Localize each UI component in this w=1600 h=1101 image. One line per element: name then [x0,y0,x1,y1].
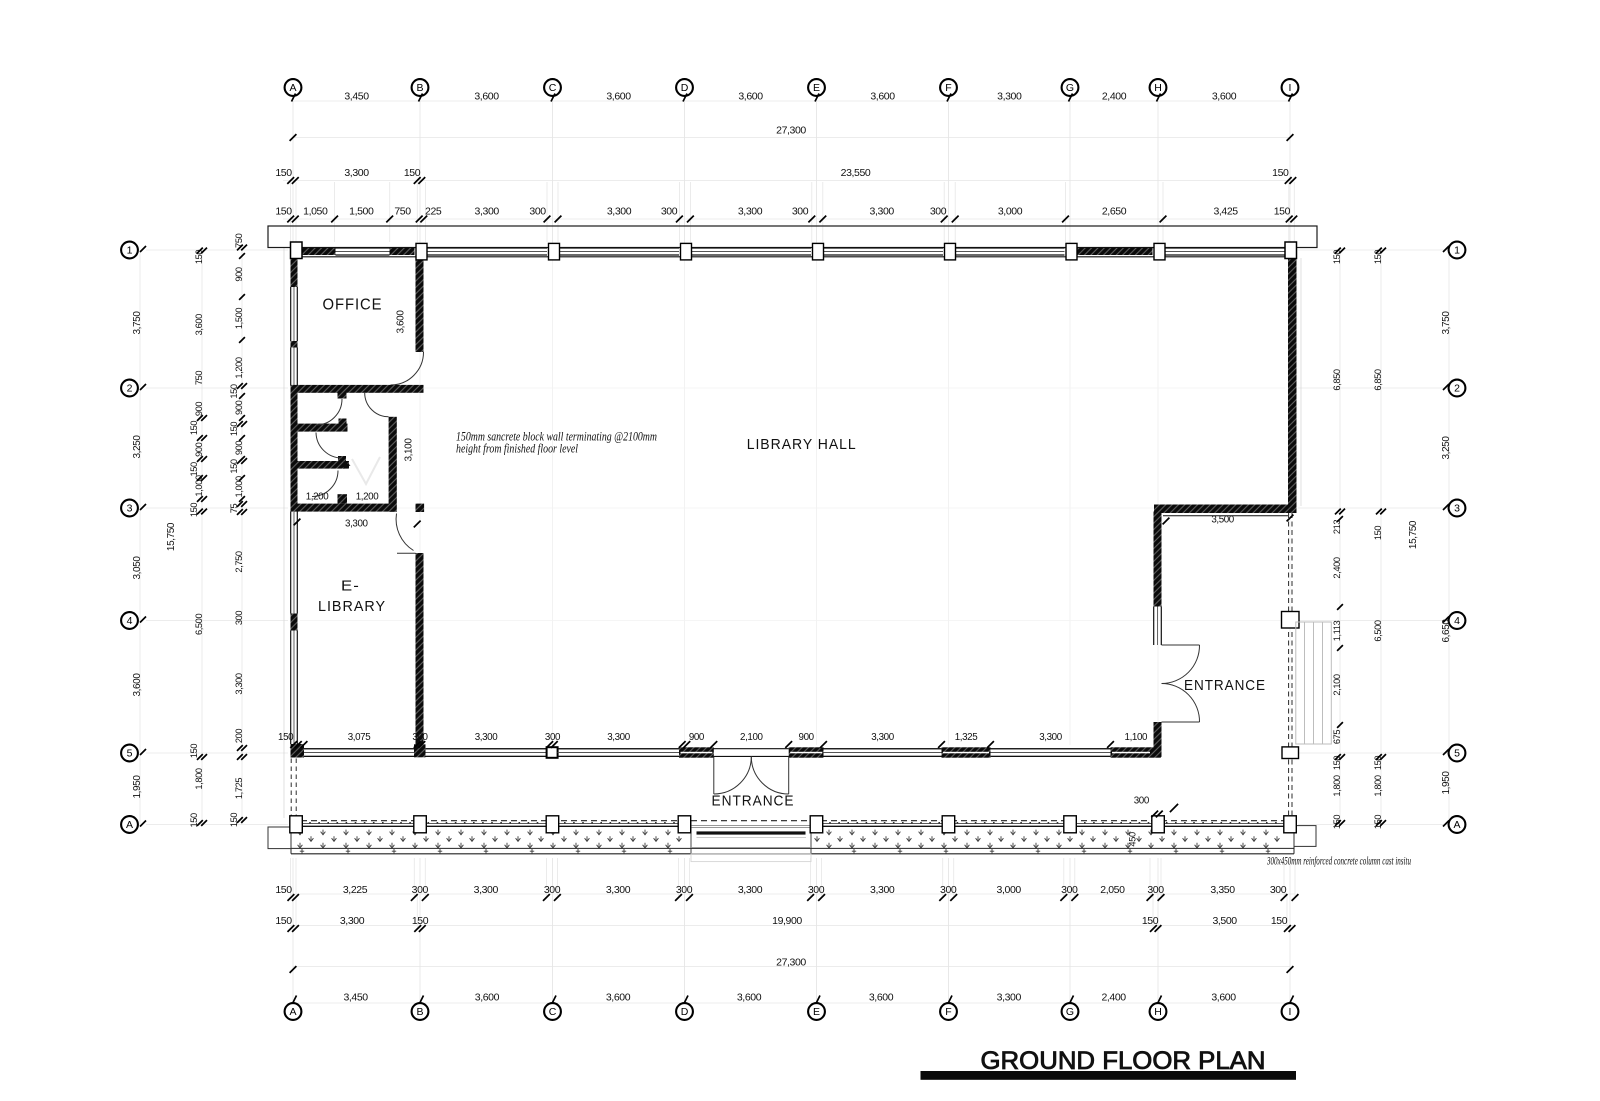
svg-text:2,750: 2,750 [234,551,244,572]
svg-text:2: 2 [127,383,133,395]
svg-text:GROUND FLOOR PLAN: GROUND FLOOR PLAN [981,1047,1266,1075]
svg-text:1,200: 1,200 [234,357,244,378]
svg-text:1: 1 [1454,245,1460,257]
svg-text:300: 300 [661,206,678,218]
svg-text:B: B [416,82,423,94]
svg-text:3,050: 3,050 [132,556,143,580]
svg-text:3,600: 3,600 [1211,991,1236,1003]
svg-text:150: 150 [278,732,294,743]
svg-text:3: 3 [1454,503,1460,515]
svg-text:19,900: 19,900 [772,915,802,927]
svg-text:3,100: 3,100 [404,438,415,462]
svg-text:3,450: 3,450 [343,991,368,1003]
svg-text:H: H [1154,82,1162,94]
svg-text:3,750: 3,750 [132,311,143,335]
svg-text:1,200: 1,200 [356,492,379,503]
svg-text:150: 150 [1272,167,1289,179]
svg-text:150: 150 [189,462,199,477]
svg-text:300: 300 [1147,884,1164,896]
svg-text:150: 150 [275,167,292,179]
svg-text:3,600: 3,600 [606,991,631,1003]
svg-text:A: A [1453,819,1460,831]
svg-text:D: D [681,1006,689,1018]
svg-text:1,100: 1,100 [1125,732,1148,743]
svg-text:1,050: 1,050 [303,206,328,218]
svg-text:F: F [945,1006,951,1018]
svg-text:3,075: 3,075 [348,732,371,743]
svg-text:300: 300 [1134,796,1150,807]
svg-text:3,425: 3,425 [1213,206,1238,218]
svg-text:1,950: 1,950 [132,775,143,799]
svg-text:300: 300 [792,206,809,218]
svg-text:150: 150 [275,915,292,927]
svg-text:200: 200 [234,729,244,744]
svg-text:4: 4 [127,615,133,627]
svg-text:3,300: 3,300 [870,884,895,896]
svg-text:150: 150 [189,744,199,759]
svg-text:15,750: 15,750 [166,522,177,551]
svg-text:2,400: 2,400 [1102,91,1127,103]
svg-text:ENTRANCE: ENTRANCE [1184,678,1266,694]
svg-text:900: 900 [234,267,244,282]
svg-text:2,650: 2,650 [1102,206,1127,218]
svg-text:ENTRANCE: ENTRANCE [712,794,795,810]
svg-text:C: C [549,82,557,94]
svg-text:3,300: 3,300 [997,991,1022,1003]
svg-text:150: 150 [189,421,199,436]
svg-text:G: G [1066,1006,1074,1018]
svg-text:I: I [1289,1006,1292,1018]
svg-text:300: 300 [808,884,825,896]
svg-text:3,600: 3,600 [396,310,407,334]
svg-text:3,225: 3,225 [343,884,368,896]
svg-text:1,800: 1,800 [1373,775,1383,796]
svg-text:3,300: 3,300 [997,91,1022,103]
svg-text:OFFICE: OFFICE [323,297,383,314]
svg-text:3,500: 3,500 [1212,915,1237,927]
svg-text:2,400: 2,400 [1101,991,1126,1003]
svg-text:900: 900 [194,442,204,457]
svg-text:G: G [1066,82,1074,94]
svg-text:3,000: 3,000 [998,206,1023,218]
svg-text:300: 300 [676,884,693,896]
svg-text:150: 150 [229,422,239,437]
svg-text:3,300: 3,300 [474,884,499,896]
svg-text:3,250: 3,250 [132,435,143,459]
svg-text:LIBRARY HALL: LIBRARY HALL [747,437,857,453]
svg-text:4: 4 [1454,615,1460,627]
svg-text:3,300: 3,300 [340,915,365,927]
svg-text:900: 900 [234,441,244,456]
svg-text:27,300: 27,300 [776,957,806,969]
svg-text:2,100: 2,100 [740,732,763,743]
svg-text:750: 750 [394,206,411,218]
svg-text:450: 450 [1128,832,1138,847]
svg-text:3,000: 3,000 [997,884,1022,896]
svg-text:2: 2 [1454,383,1460,395]
svg-text:23,550: 23,550 [841,167,871,179]
svg-text:300x450mm reinforced concrete: 300x450mm reinforced concrete column cas… [1266,854,1411,868]
svg-text:3,300: 3,300 [475,732,498,743]
svg-text:3,300: 3,300 [1039,732,1062,743]
svg-text:150: 150 [1373,526,1383,541]
svg-text:5: 5 [1454,748,1460,760]
svg-text:6,650: 6,650 [1441,619,1452,643]
svg-text:3,300: 3,300 [871,732,894,743]
svg-text:1,725: 1,725 [234,778,244,799]
svg-text:2,050: 2,050 [1100,884,1125,896]
svg-text:3: 3 [127,503,133,515]
svg-text:6,500: 6,500 [194,614,204,635]
svg-text:I: I [1289,82,1292,94]
svg-text:300: 300 [1270,884,1287,896]
svg-text:3,600: 3,600 [194,314,204,335]
svg-text:LIBRARY: LIBRARY [318,599,386,615]
svg-text:150: 150 [275,206,292,218]
svg-text:3,600: 3,600 [474,91,499,103]
svg-text:5: 5 [127,748,133,760]
svg-text:A: A [126,819,133,831]
svg-text:150: 150 [229,813,239,828]
svg-text:1,000: 1,000 [234,476,244,497]
svg-text:2,100: 2,100 [1332,674,1342,695]
svg-text:E-: E- [341,579,360,595]
svg-text:height from finished floor lev: height from finished floor level [456,442,578,456]
svg-text:3,300: 3,300 [234,673,244,694]
svg-text:3,250: 3,250 [1441,436,1452,460]
svg-text:1,800: 1,800 [194,768,204,789]
svg-text:150: 150 [1373,815,1383,830]
svg-text:150: 150 [1274,206,1291,218]
svg-text:15,750: 15,750 [1408,520,1419,549]
svg-text:3,300: 3,300 [738,206,763,218]
svg-text:3,600: 3,600 [870,91,895,103]
svg-text:150: 150 [229,459,239,474]
svg-text:27,300: 27,300 [776,125,806,137]
svg-text:150: 150 [275,884,292,896]
svg-text:300: 300 [412,884,429,896]
svg-text:900: 900 [799,732,815,743]
svg-text:750: 750 [194,371,204,386]
svg-text:1,325: 1,325 [955,732,978,743]
svg-text:D: D [681,82,689,94]
svg-text:150: 150 [1332,815,1342,830]
svg-text:3,300: 3,300 [738,884,763,896]
svg-text:900: 900 [689,732,705,743]
svg-text:F: F [945,82,951,94]
svg-text:1,950: 1,950 [1441,771,1452,795]
svg-text:3,750: 3,750 [1441,311,1452,335]
svg-text:900: 900 [234,400,244,415]
svg-text:1,113: 1,113 [1332,620,1342,641]
svg-text:1: 1 [127,245,133,257]
svg-text:3,600: 3,600 [737,991,762,1003]
svg-text:3,350: 3,350 [1210,884,1235,896]
svg-text:225: 225 [425,206,442,218]
svg-text:300: 300 [544,884,561,896]
svg-text:A: A [289,82,296,94]
svg-text:H: H [1154,1006,1162,1018]
svg-text:3,600: 3,600 [738,91,763,103]
svg-text:C: C [549,1006,557,1018]
svg-text:3,500: 3,500 [1211,514,1234,525]
svg-text:300: 300 [940,884,957,896]
svg-text:300: 300 [529,206,546,218]
svg-text:1,500: 1,500 [234,308,244,329]
svg-text:3,300: 3,300 [607,206,632,218]
svg-text:1,500: 1,500 [349,206,374,218]
svg-text:900: 900 [194,402,204,417]
svg-text:75: 75 [229,504,239,514]
svg-text:1,800: 1,800 [1332,775,1342,796]
svg-text:6,500: 6,500 [1373,620,1383,641]
svg-text:3,600: 3,600 [1212,91,1237,103]
svg-text:E: E [813,82,820,94]
svg-text:A: A [289,1006,296,1018]
svg-text:3,300: 3,300 [344,167,369,179]
svg-text:3,450: 3,450 [344,91,369,103]
svg-text:E: E [813,1006,820,1018]
svg-text:3,300: 3,300 [345,519,368,530]
svg-text:3,600: 3,600 [132,673,143,697]
svg-text:3,300: 3,300 [607,732,630,743]
svg-text:300: 300 [1061,884,1078,896]
svg-text:300: 300 [930,206,947,218]
svg-text:2,400: 2,400 [1332,557,1342,578]
svg-text:300: 300 [234,611,244,626]
svg-text:6,850: 6,850 [1332,369,1342,390]
svg-text:3,300: 3,300 [870,206,895,218]
svg-text:150: 150 [189,503,199,518]
svg-text:150: 150 [229,384,239,399]
svg-text:3,300: 3,300 [606,884,631,896]
svg-text:675: 675 [1332,730,1342,745]
svg-text:3,600: 3,600 [475,991,500,1003]
svg-text:150: 150 [1271,915,1288,927]
svg-text:150: 150 [404,167,421,179]
svg-text:1,200: 1,200 [306,492,329,503]
svg-text:3,600: 3,600 [606,91,631,103]
svg-text:3,300: 3,300 [475,206,500,218]
svg-text:B: B [416,1006,423,1018]
svg-text:3,600: 3,600 [869,991,894,1003]
svg-text:6,850: 6,850 [1373,369,1383,390]
